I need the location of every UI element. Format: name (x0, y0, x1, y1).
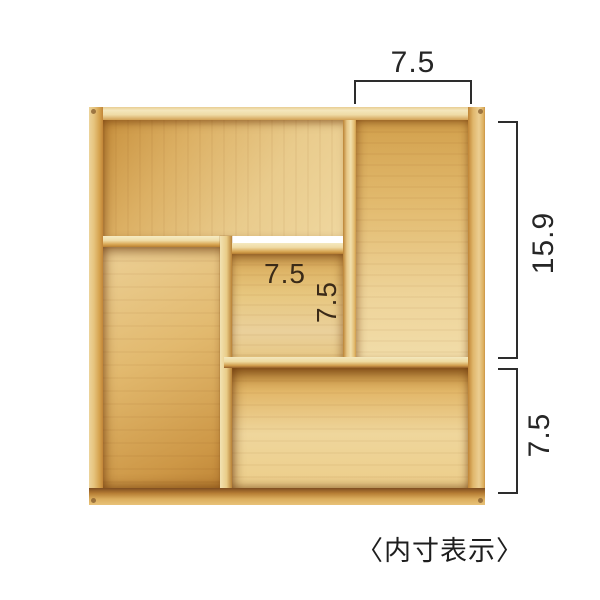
corner-joint-dot (478, 109, 483, 114)
divider-center-vertical (343, 120, 356, 357)
dimension-label-inner-depth: 7.5 (313, 267, 341, 337)
dimension-label-right-height: 15.9 (529, 198, 559, 288)
compartment-top-right-tall (356, 120, 468, 357)
inner-dimension-caption: 〈内寸表示〉 (356, 529, 524, 568)
dimension-bracket-right-height (498, 121, 518, 359)
dimension-label-right-lower-height: 7.5 (525, 400, 555, 470)
dimension-label-top-width: 7.5 (356, 48, 470, 78)
divider-center-shelf (232, 243, 343, 254)
divider-left-shelf (103, 236, 220, 247)
box-wall-right (468, 107, 485, 505)
dimension-bracket-top-width (354, 80, 472, 104)
dimension-bracket-right-lower-height (498, 368, 518, 494)
compartment-bottom-wide (232, 368, 468, 488)
wooden-organizer-box (89, 107, 485, 505)
box-wall-top (89, 107, 485, 120)
compartment-top-left (103, 120, 343, 236)
corner-joint-dot (478, 498, 483, 503)
divider-lower-horizontal (224, 357, 468, 368)
product-dimension-diagram: 7.5 15.9 7.5 7.5 7.5 〈内寸表示〉 (0, 0, 600, 600)
corner-joint-dot (91, 109, 96, 114)
box-wall-left (89, 107, 103, 505)
compartment-left-tall (103, 247, 220, 488)
box-wall-bottom (89, 488, 485, 505)
corner-joint-dot (91, 498, 96, 503)
